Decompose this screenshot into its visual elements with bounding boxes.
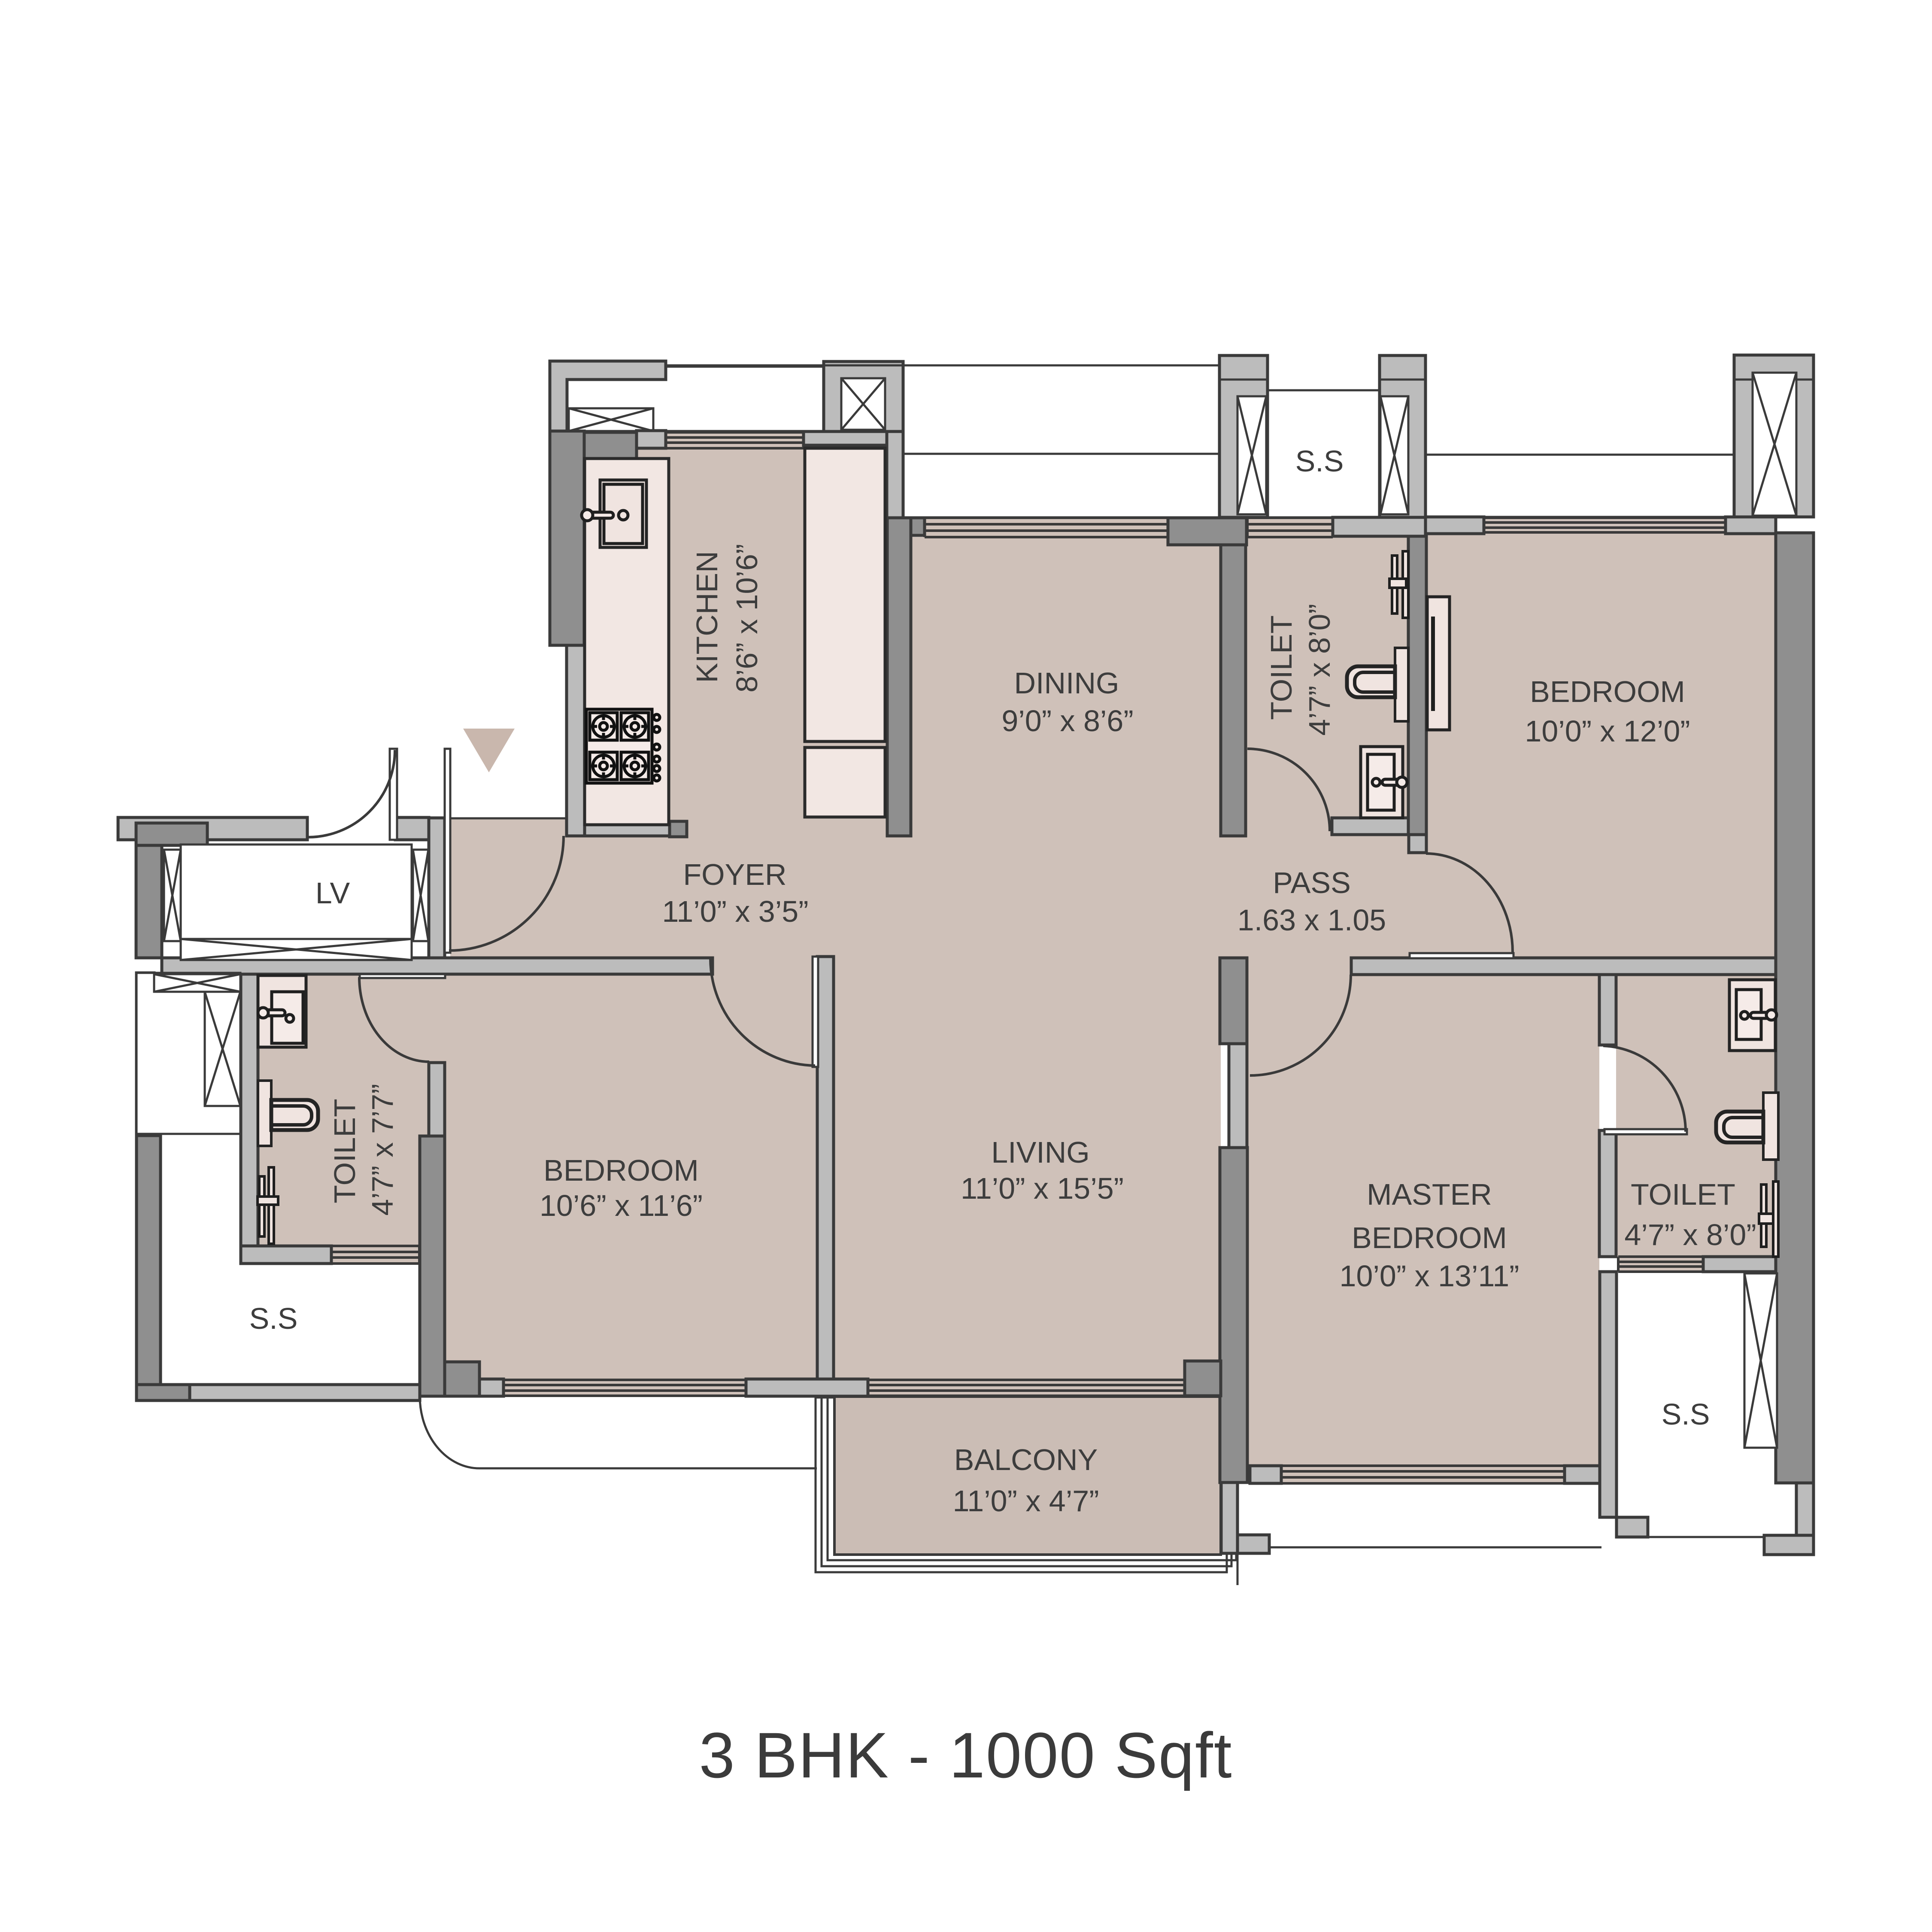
svg-text:TOILET: TOILET bbox=[1265, 615, 1298, 720]
svg-text:TOILET: TOILET bbox=[1631, 1178, 1735, 1211]
svg-text:S.S: S.S bbox=[249, 1302, 298, 1335]
svg-text:DINING: DINING bbox=[1014, 666, 1119, 700]
svg-text:FOYER: FOYER bbox=[683, 858, 786, 891]
svg-text:3 BHK - 1000 Sqft: 3 BHK - 1000 Sqft bbox=[699, 1719, 1232, 1791]
svg-text:BALCONY: BALCONY bbox=[954, 1443, 1098, 1476]
svg-text:4’7” x 8’0”: 4’7” x 8’0” bbox=[1624, 1218, 1756, 1252]
svg-text:4’7” x 8’0”: 4’7” x 8’0” bbox=[1303, 604, 1336, 735]
svg-text:TOILET: TOILET bbox=[328, 1099, 361, 1203]
svg-text:10’6” x 11’6”: 10’6” x 11’6” bbox=[540, 1189, 703, 1222]
svg-text:1.63 x 1.05: 1.63 x 1.05 bbox=[1237, 903, 1386, 937]
svg-text:11’0” x 3’5”: 11’0” x 3’5” bbox=[662, 895, 808, 928]
svg-text:BEDROOM: BEDROOM bbox=[1352, 1221, 1507, 1255]
svg-text:10’0” x 12’0”: 10’0” x 12’0” bbox=[1525, 714, 1690, 748]
svg-text:S.S: S.S bbox=[1662, 1397, 1710, 1431]
svg-text:8’6” x 10’6”: 8’6” x 10’6” bbox=[730, 544, 764, 693]
svg-text:MASTER: MASTER bbox=[1367, 1178, 1492, 1211]
svg-text:PASS: PASS bbox=[1273, 866, 1351, 899]
svg-text:10’0” x 13’11”: 10’0” x 13’11” bbox=[1340, 1259, 1520, 1293]
svg-text:BEDROOM: BEDROOM bbox=[1530, 675, 1685, 708]
svg-text:KITCHEN: KITCHEN bbox=[690, 551, 724, 683]
svg-text:LV: LV bbox=[315, 876, 350, 910]
svg-text:S.S: S.S bbox=[1295, 444, 1344, 478]
svg-text:11’0” x 4’7”: 11’0” x 4’7” bbox=[952, 1484, 1099, 1518]
svg-text:BEDROOM: BEDROOM bbox=[543, 1154, 699, 1187]
svg-text:9’0” x 8’6”: 9’0” x 8’6” bbox=[1001, 704, 1133, 738]
svg-text:LIVING: LIVING bbox=[991, 1136, 1090, 1169]
svg-text:4’7” x 7’7”: 4’7” x 7’7” bbox=[366, 1084, 399, 1215]
svg-text:11’0” x 15’5”: 11’0” x 15’5” bbox=[961, 1172, 1124, 1205]
